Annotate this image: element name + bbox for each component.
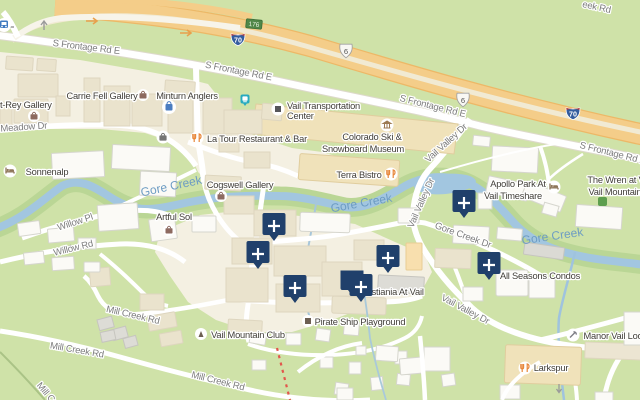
svg-text:Terra Bistro: Terra Bistro [336,170,381,180]
svg-text:Vail Mountain Club: Vail Mountain Club [211,330,285,340]
svg-text:La Tour Restaurant & Bar: La Tour Restaurant & Bar [207,134,307,144]
svg-text:Carrie Fell Gallery: Carrie Fell Gallery [66,91,138,101]
svg-text:70: 70 [234,36,242,44]
svg-text:t-Rey Gallery: t-Rey Gallery [0,100,52,110]
svg-text:Pirate Ship Playground: Pirate Ship Playground [315,317,406,327]
svg-text:Larkspur: Larkspur [534,363,569,373]
svg-text:70: 70 [569,110,577,118]
svg-text:Artful Sol: Artful Sol [156,212,192,222]
svg-text:Vail Timeshare: Vail Timeshare [484,191,542,201]
svg-text:Manor Vail Lodge: Manor Vail Lodge [584,331,640,341]
svg-text:All Seasons Condos: All Seasons Condos [500,271,581,281]
svg-text:Minturn Anglers: Minturn Anglers [156,91,218,101]
svg-text:6: 6 [344,47,348,56]
svg-text:Cogswell Gallery: Cogswell Gallery [207,180,274,190]
svg-text:Vail Mountain: Vail Mountain [588,187,640,197]
svg-text:The Wren at V: The Wren at V [587,175,640,185]
svg-text:Snowboard Museum: Snowboard Museum [322,144,405,154]
svg-text:Center: Center [287,111,314,121]
svg-text:Colorado Ski &: Colorado Ski & [342,132,402,142]
svg-text:Sonnenalp: Sonnenalp [26,167,69,177]
svg-text:176: 176 [248,21,260,29]
svg-text:Vail Transportation: Vail Transportation [287,101,360,111]
svg-text:6: 6 [461,96,465,105]
svg-text:Apollo Park At: Apollo Park At [490,179,546,189]
